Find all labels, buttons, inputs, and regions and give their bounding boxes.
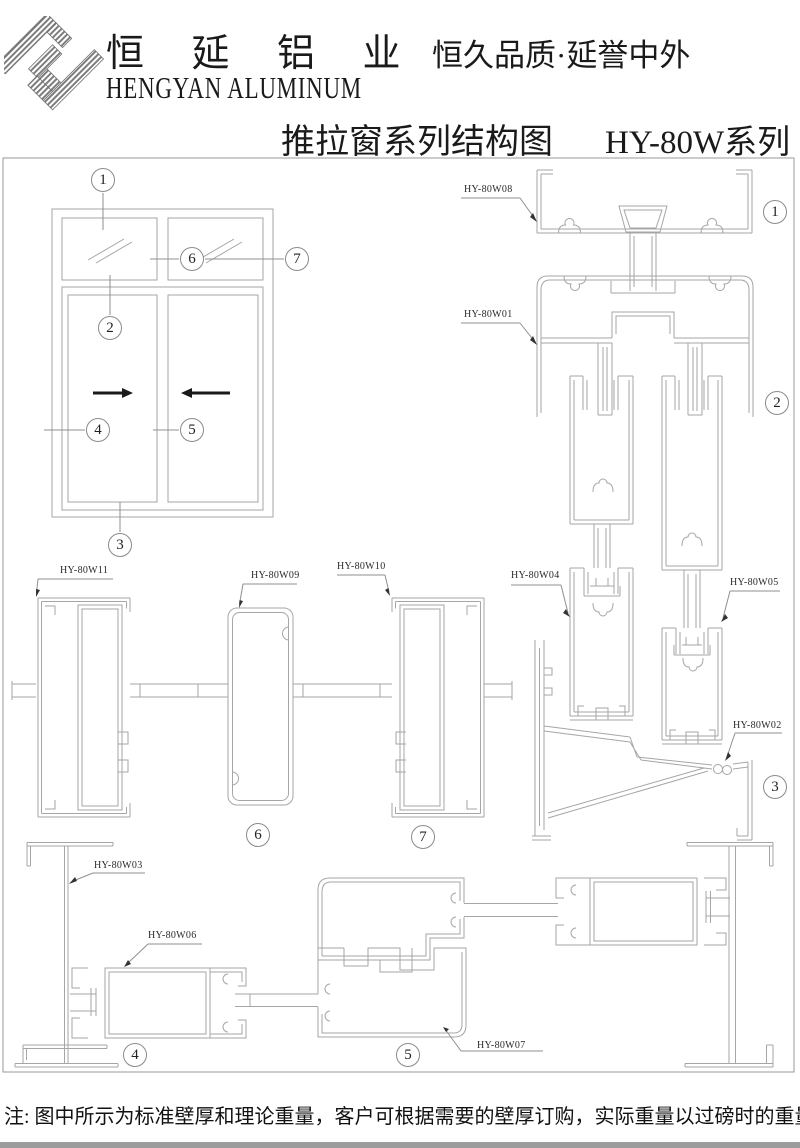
- profile-label-hy-80w02: HY-80W02: [733, 720, 782, 731]
- callout-section-4: 4: [123, 1043, 147, 1067]
- section-sash-rails: [570, 376, 722, 744]
- callout-section-2: 2: [765, 391, 789, 415]
- callout-elevation-4: 4: [86, 418, 110, 442]
- callout-elevation-1: 1: [91, 168, 115, 192]
- slide-arrow-left: [181, 388, 230, 398]
- profile-linework: [0, 0, 800, 1148]
- slide-arrow-right: [93, 388, 133, 398]
- section-head-profiles: [537, 170, 753, 417]
- callout-elevation-7: 7: [285, 247, 309, 271]
- callout-section-1: 1: [763, 200, 787, 224]
- callout-section-3: 3: [763, 775, 787, 799]
- callout-elevation-6: 6: [180, 247, 204, 271]
- section-jambs-and-mullion: [12, 598, 512, 817]
- profile-label-hy-80w10: HY-80W10: [337, 561, 386, 572]
- profile-label-hy-80w11: HY-80W11: [60, 565, 108, 576]
- profile-label-hy-80w06: HY-80W06: [148, 930, 197, 941]
- callout-section-5: 5: [396, 1043, 420, 1067]
- page: 恒 延 铝 业 HENGYAN ALUMINUM 恒久品质·延誉中外 推拉窗系列…: [0, 0, 800, 1148]
- callout-elevation-2: 2: [98, 316, 122, 340]
- profile-label-hy-80w09: HY-80W09: [251, 570, 300, 581]
- callout-section-7: 7: [411, 825, 435, 849]
- bottom-bar: [0, 1142, 800, 1148]
- profile-label-hy-80w04: HY-80W04: [511, 570, 560, 581]
- leader-arrowheads: [36, 213, 731, 1032]
- callout-section-6: 6: [246, 823, 270, 847]
- window-elevation: [44, 193, 284, 532]
- profile-label-hy-80w01: HY-80W01: [464, 309, 513, 320]
- section-bottom-rails: [15, 843, 773, 1068]
- profile-label-hy-80w05: HY-80W05: [730, 577, 779, 588]
- footer-note: 注: 图中所示为标准壁厚和理论重量，客户可根据需要的壁厚订购，实际重量以过磅时的…: [4, 1100, 800, 1129]
- profile-label-hy-80w03: HY-80W03: [94, 860, 143, 871]
- callout-elevation-5: 5: [180, 418, 204, 442]
- profile-label-hy-80w07: HY-80W07: [477, 1040, 526, 1051]
- profile-label-hy-80w08: HY-80W08: [464, 184, 513, 195]
- callout-elevation-3: 3: [108, 533, 132, 557]
